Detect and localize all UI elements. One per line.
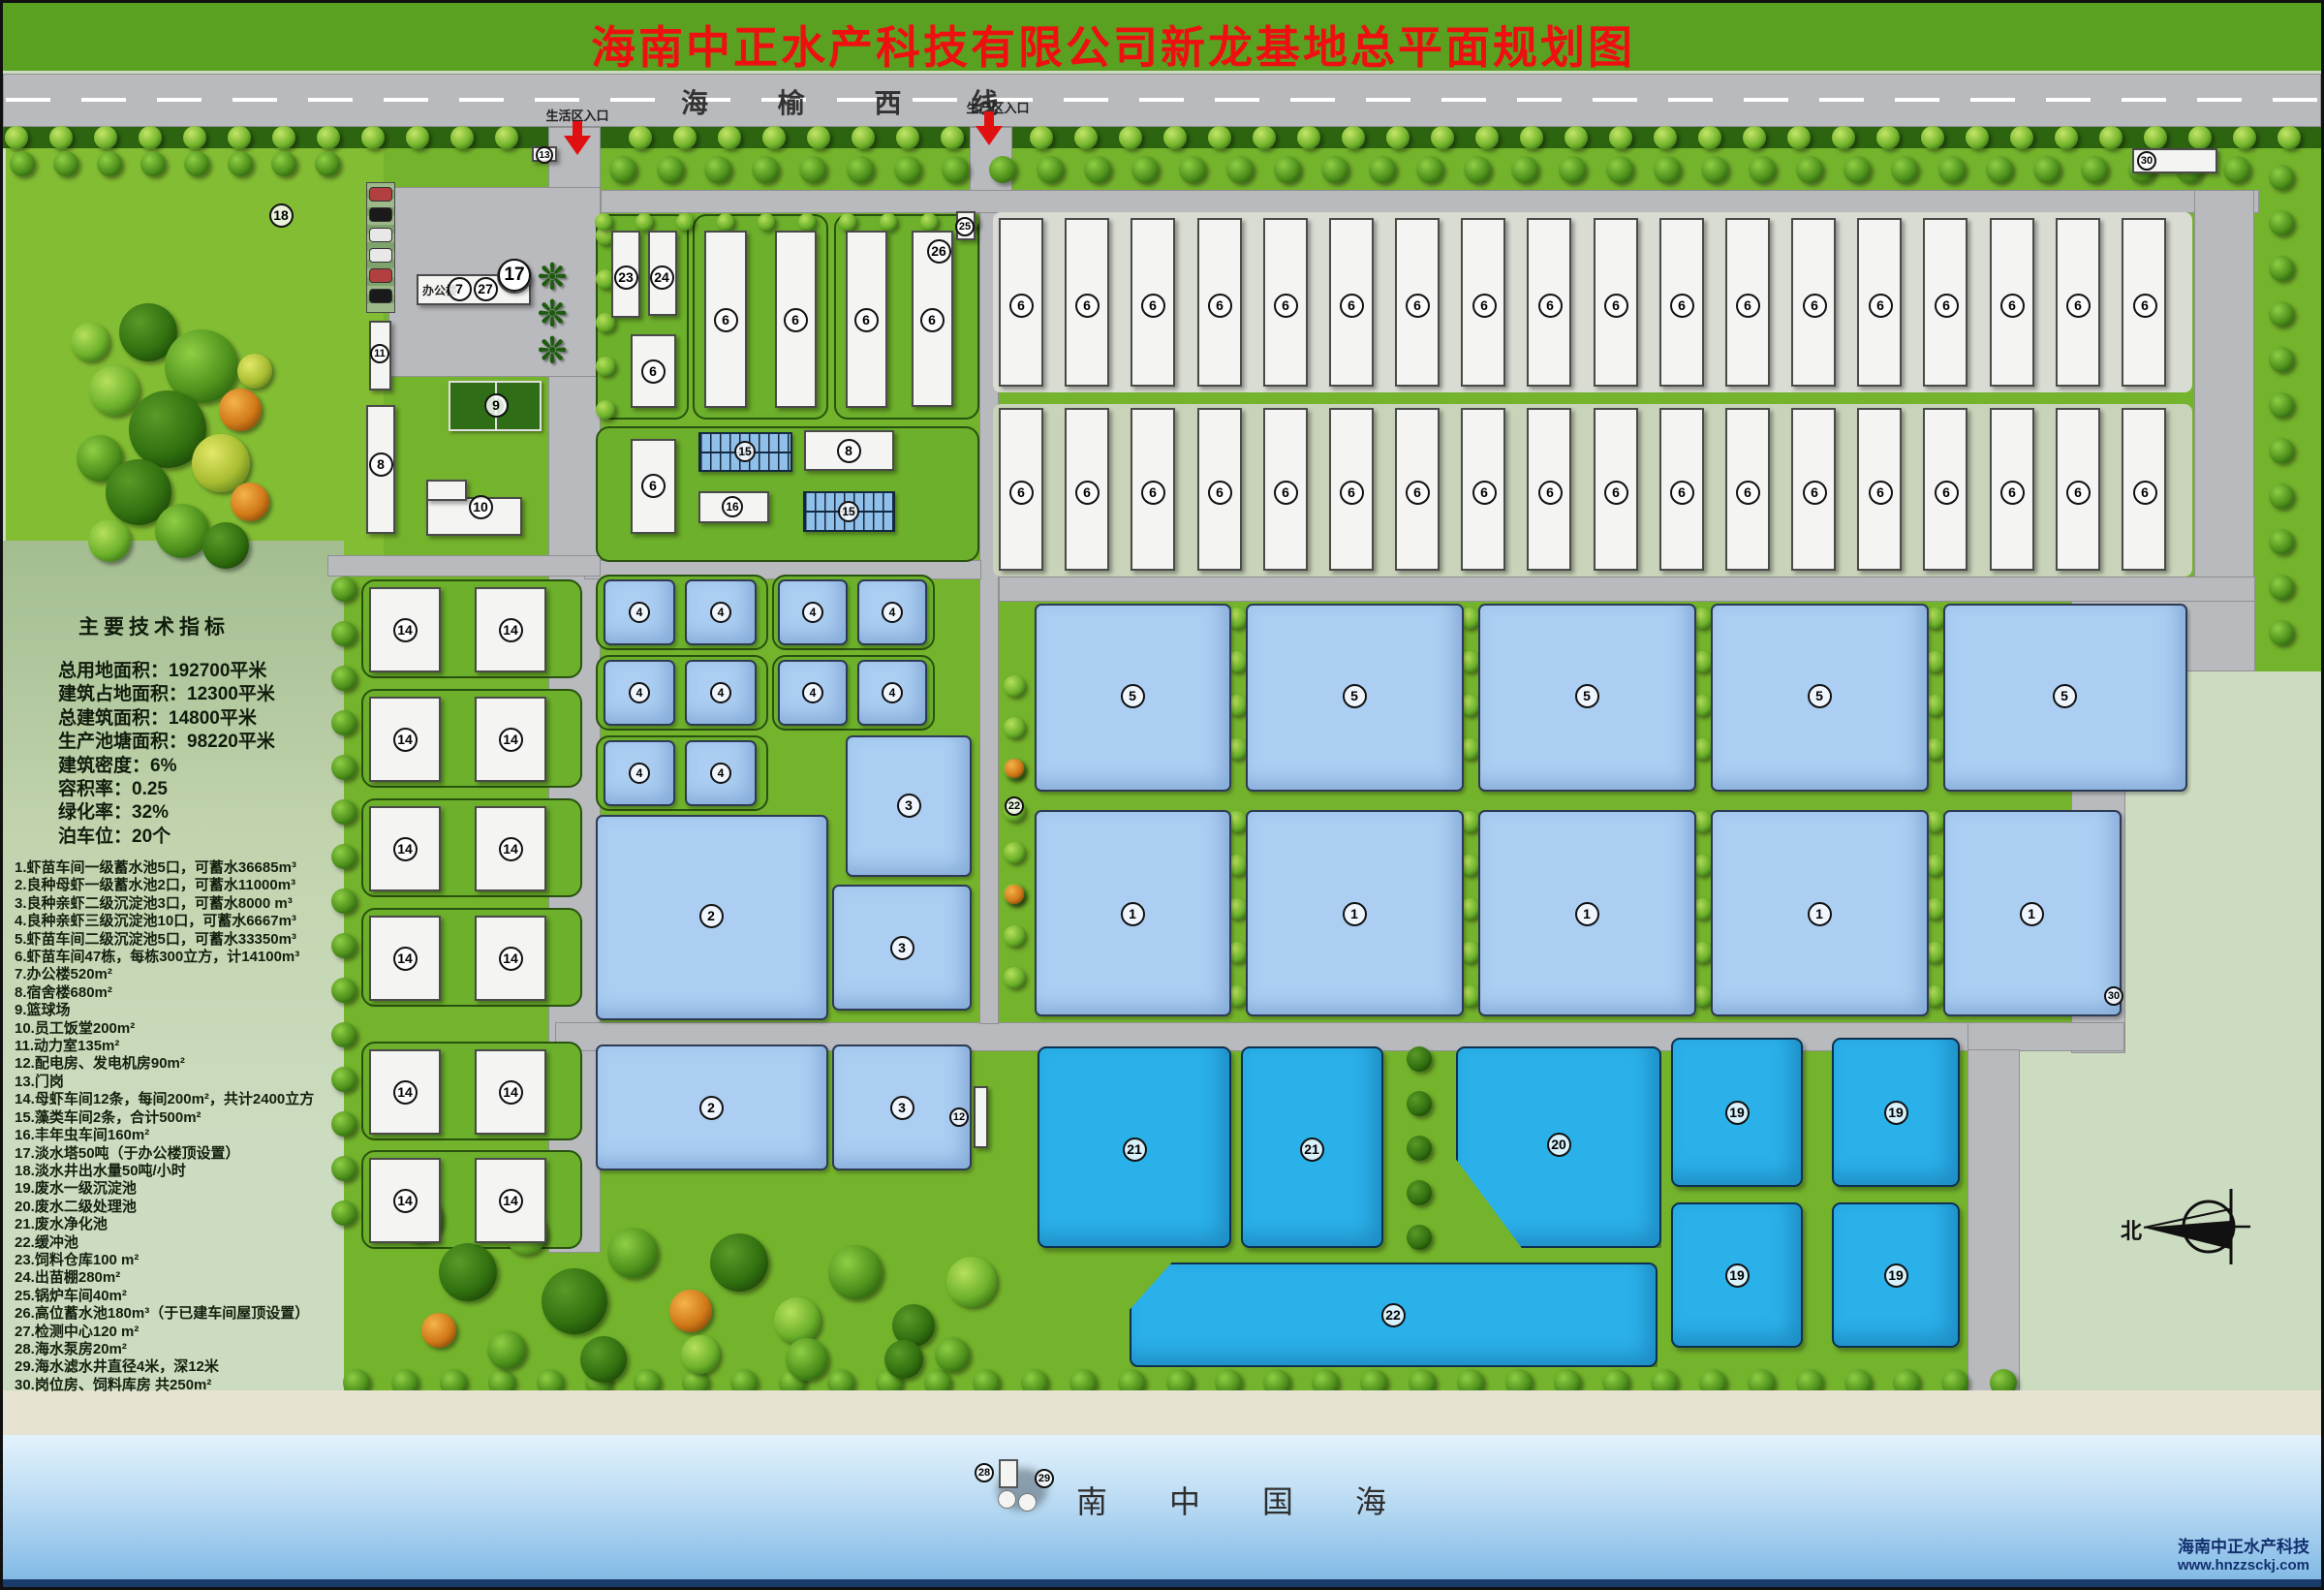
tree (1297, 126, 1320, 149)
tree (53, 151, 78, 176)
plan-marker-6: 6 (2066, 294, 2091, 318)
tree (1475, 126, 1499, 149)
tree (1431, 126, 1454, 149)
tree (2269, 301, 2294, 327)
plan-marker-6: 6 (2133, 294, 2157, 318)
plan-marker-14: 14 (499, 947, 523, 971)
plan-marker-4: 4 (802, 682, 823, 703)
plan-marker-6: 6 (1340, 481, 1364, 505)
plan-marker-16: 16 (722, 496, 743, 517)
tree (799, 156, 826, 183)
tree (2081, 156, 2108, 183)
plan-marker-4: 4 (802, 602, 823, 623)
plan-marker-2: 2 (699, 904, 724, 928)
plan-marker-22: 22 (1381, 1303, 1406, 1327)
road (601, 190, 2259, 213)
tree (580, 1336, 627, 1383)
tree (1074, 126, 1098, 149)
building (426, 480, 467, 501)
compass-icon (2086, 1166, 2279, 1292)
tree (1559, 156, 1586, 183)
seawater-pump-house (999, 1459, 1018, 1488)
tree (607, 1228, 658, 1278)
legend-item: 4.良种亲虾三级沉淀池10口，可蓄水6667m³ (15, 913, 314, 930)
plan-marker-19: 19 (1884, 1101, 1908, 1125)
sea-name-label: 南中国海 (1076, 1478, 1448, 1522)
plan-marker-27: 27 (474, 277, 498, 301)
tree (880, 213, 897, 231)
tree (2269, 483, 2294, 509)
tree (439, 1243, 497, 1301)
parked-car (369, 289, 392, 303)
plan-marker-6: 6 (1935, 294, 1959, 318)
plan-marker-6: 6 (1670, 294, 1694, 318)
tree (331, 666, 356, 691)
road (999, 577, 2255, 602)
tree (2233, 126, 2256, 149)
plan-marker-8: 8 (837, 439, 861, 463)
tree (139, 126, 162, 149)
plan-marker-14: 14 (393, 728, 418, 752)
tree (673, 126, 697, 149)
plan-marker-6: 6 (1803, 481, 1827, 505)
tree (1787, 126, 1811, 149)
tree (361, 126, 385, 149)
plan-marker-4: 4 (629, 763, 650, 784)
parked-car (369, 207, 392, 222)
plan-marker-6: 6 (1406, 294, 1430, 318)
tree (1037, 156, 1064, 183)
tree (1407, 1046, 1432, 1072)
tree (2144, 126, 2167, 149)
tree (1342, 126, 1365, 149)
legend-item: 12.配电房、发电机房90m² (15, 1055, 314, 1073)
plan-marker-6: 6 (1935, 481, 1959, 505)
indicator-line: 生产池塘面积：98220平米 (58, 731, 275, 754)
plan-marker-6: 6 (1803, 294, 1827, 318)
tree (1030, 126, 1053, 149)
tree (1796, 156, 1823, 183)
plan-marker-6: 6 (1274, 294, 1298, 318)
site-plan-canvas: 海南中正水产科技有限公司新龙基地总平面规划图 ❊❊❊ 海 榆 西 线 生活区入口… (0, 0, 2324, 1590)
watermark-company: 海南中正水产科技 (2178, 1533, 2309, 1557)
plan-marker-19: 19 (1725, 1101, 1750, 1125)
tree (704, 156, 731, 183)
tree (1606, 156, 1633, 183)
tree (1832, 126, 1855, 149)
plan-marker-18: 18 (269, 203, 294, 228)
tree (219, 389, 262, 431)
conifer-tree-icon: ❊ (538, 257, 576, 296)
tree (1163, 126, 1187, 149)
tree (331, 799, 356, 825)
indicator-line: 泊车位：20个 (58, 826, 275, 849)
tree (1084, 156, 1111, 183)
tree (1844, 156, 1871, 183)
road (1968, 1049, 2020, 1392)
tree (1698, 126, 1721, 149)
plan-marker-21: 21 (1123, 1138, 1147, 1162)
tree (71, 323, 109, 361)
tree (681, 1335, 720, 1374)
filter-well (998, 1490, 1016, 1509)
legend-item: 30.岗位房、饲料库房 共250m² (15, 1377, 314, 1394)
tree (331, 755, 356, 780)
plan-marker-6: 6 (1736, 294, 1760, 318)
plan-marker-20: 20 (1547, 1133, 1571, 1157)
legend-item: 16.丰年虫车间160m² (15, 1127, 314, 1144)
tree (1986, 156, 2013, 183)
plan-marker-4: 4 (710, 763, 731, 784)
plan-marker-14: 14 (393, 618, 418, 642)
plan-marker-3: 3 (890, 936, 914, 960)
tree (1565, 126, 1588, 149)
tree (896, 126, 919, 149)
plan-marker-15: 15 (734, 441, 756, 462)
tree (657, 156, 684, 183)
legend-item: 2.良种母虾一级蓄水池2口，可蓄水11000m³ (15, 877, 314, 894)
tree (852, 126, 875, 149)
parked-car (369, 268, 392, 283)
tree (894, 156, 921, 183)
tree (1004, 842, 1025, 863)
tree (2033, 156, 2061, 183)
tree (1407, 1091, 1432, 1116)
tree (183, 126, 206, 149)
legend-item: 21.废水净化池 (15, 1216, 314, 1233)
tree (2010, 126, 2033, 149)
tree (1966, 126, 1989, 149)
plan-marker-6: 6 (1604, 294, 1628, 318)
watermark: 海南中正水产科技 www.hnzzsckj.com (2178, 1533, 2309, 1574)
tree (798, 213, 816, 231)
plan-marker-14: 14 (499, 728, 523, 752)
plan-marker-6: 6 (1340, 294, 1364, 318)
tree (331, 1111, 356, 1137)
plan-marker-6: 6 (1075, 481, 1100, 505)
tree (271, 151, 296, 176)
entrance-living-arrow (573, 121, 582, 136)
plan-marker-30: 30 (2137, 151, 2156, 171)
tree (5, 126, 28, 149)
plan-marker-5: 5 (1121, 684, 1145, 708)
beach-strip (3, 1390, 2321, 1437)
plan-marker-6: 6 (2133, 481, 2157, 505)
tree (140, 151, 166, 176)
tree (884, 1340, 923, 1379)
plan-marker-2: 2 (699, 1096, 724, 1120)
tree (88, 519, 131, 562)
plan-marker-6: 6 (1869, 481, 1893, 505)
tree (89, 365, 139, 416)
indicators-title: 主要技术指标 (78, 611, 230, 640)
tree (231, 483, 269, 521)
legend-item: 5.虾苗车间二级沉淀池5口，可蓄水33350m³ (15, 931, 314, 949)
legend-item: 24.出苗棚280m² (15, 1269, 314, 1287)
tree (202, 522, 249, 569)
tree (272, 126, 295, 149)
legend-item: 23.饲料仓库100 m² (15, 1252, 314, 1269)
plan-marker-14: 14 (393, 1080, 418, 1105)
tree (1407, 1180, 1432, 1205)
plan-marker-4: 4 (629, 602, 650, 623)
plan-marker-3: 3 (890, 1096, 914, 1120)
tree (629, 126, 652, 149)
tree (228, 151, 253, 176)
tree (717, 213, 734, 231)
plan-marker-4: 4 (710, 682, 731, 703)
plan-marker-6: 6 (1009, 294, 1034, 318)
tree (487, 1330, 526, 1369)
legend-item: 11.动力室135m² (15, 1038, 314, 1055)
building (974, 1086, 988, 1148)
plan-marker-6: 6 (2066, 481, 2091, 505)
tree (1005, 885, 1024, 904)
plan-marker-28: 28 (975, 1463, 994, 1482)
tree (828, 1245, 883, 1299)
tree (1464, 156, 1491, 183)
tree (1321, 156, 1348, 183)
plan-marker-1: 1 (1575, 902, 1599, 926)
tree (228, 126, 251, 149)
tree (774, 1297, 821, 1344)
tree (331, 1022, 356, 1047)
tree (155, 504, 209, 558)
entrance-production-arrow-head (976, 126, 1003, 145)
tree (331, 1200, 356, 1226)
tree (1407, 1225, 1432, 1250)
plan-marker-9: 9 (484, 393, 509, 418)
plan-marker-1: 1 (2020, 902, 2044, 926)
tree (935, 1337, 970, 1372)
road-centerline (6, 98, 2324, 102)
filter-well (1018, 1493, 1037, 1512)
plan-marker-1: 1 (1121, 902, 1145, 926)
plan-marker-21: 21 (1300, 1138, 1324, 1162)
plan-marker-6: 6 (641, 359, 666, 384)
tree (331, 1156, 356, 1181)
road (1968, 1022, 2124, 1051)
tree (2278, 126, 2301, 149)
plan-marker-4: 4 (882, 682, 903, 703)
plan-marker-12: 12 (949, 1107, 969, 1127)
plan-marker-6: 6 (1869, 294, 1893, 318)
tree (1743, 126, 1766, 149)
plan-marker-1: 1 (1343, 902, 1367, 926)
legend-item: 28.海水泵房20m² (15, 1341, 314, 1358)
tree (635, 213, 653, 231)
tree (1004, 925, 1025, 947)
indicator-line: 总用地面积：192700平米 (58, 660, 275, 683)
tree (1876, 126, 1900, 149)
page-title: 海南中正水产科技有限公司新龙基地总平面规划图 (3, 13, 2223, 77)
plan-marker-6: 6 (2000, 294, 2025, 318)
plan-marker-25: 25 (955, 217, 975, 236)
indicator-line: 建筑占地面积：12300平米 (58, 683, 275, 706)
tree (609, 156, 636, 183)
legend-item: 27.检测中心120 m² (15, 1324, 314, 1341)
plan-marker-19: 19 (1725, 1263, 1750, 1288)
tree (331, 1067, 356, 1092)
tree (317, 126, 340, 149)
plan-marker-26: 26 (927, 239, 951, 264)
tree (1654, 156, 1681, 183)
plan-marker-13: 13 (536, 146, 553, 164)
plan-marker-22: 22 (1005, 796, 1024, 816)
compass-north-label: 北 (2121, 1214, 2142, 1245)
plan-marker-6: 6 (1009, 481, 1034, 505)
tree (331, 844, 356, 869)
plan-marker-17: 17 (498, 259, 531, 292)
plan-marker-6: 6 (784, 308, 808, 332)
conifer-tree-icon: ❊ (538, 330, 576, 369)
tree (758, 213, 775, 231)
plan-marker-14: 14 (499, 618, 523, 642)
plan-marker-5: 5 (1808, 684, 1832, 708)
tree (2055, 126, 2078, 149)
tree (946, 1257, 997, 1307)
tree (1386, 126, 1410, 149)
plan-marker-6: 6 (1670, 481, 1694, 505)
plan-marker-6: 6 (2000, 481, 2025, 505)
legend-item: 14.母虾车间12条，每间200m²，共计2400立方 (15, 1091, 314, 1108)
plan-marker-14: 14 (499, 837, 523, 861)
sea-bottom-bar (3, 1579, 2321, 1590)
tree (2269, 210, 2294, 235)
parked-car (369, 228, 392, 242)
tree (331, 978, 356, 1003)
legend-item: 13.门岗 (15, 1074, 314, 1091)
tree (847, 156, 874, 183)
tree (421, 1313, 456, 1348)
tree (1749, 156, 1776, 183)
plan-marker-6: 6 (1472, 481, 1497, 505)
tree (718, 126, 741, 149)
plan-marker-6: 6 (1141, 294, 1165, 318)
tree (676, 213, 694, 231)
plan-marker-29: 29 (1035, 1469, 1054, 1488)
indicator-line: 绿化率：32% (58, 801, 275, 825)
tree (1938, 156, 1966, 183)
plan-marker-6: 6 (1538, 481, 1563, 505)
tree (1654, 126, 1677, 149)
tree (495, 126, 518, 149)
tree (97, 151, 122, 176)
tree (1208, 126, 1231, 149)
tree (1004, 967, 1025, 988)
tree (920, 213, 938, 231)
plan-marker-6: 6 (1538, 294, 1563, 318)
tree (331, 889, 356, 914)
legend-item: 9.篮球场 (15, 1002, 314, 1019)
tree (331, 933, 356, 958)
conifer-tree-icon: ❊ (538, 294, 576, 332)
tree (1609, 126, 1632, 149)
indicator-line: 建筑密度：6% (58, 755, 275, 778)
indicator-line: 容积率：0.25 (58, 778, 275, 801)
indicator-line: 总建筑面积：14800平米 (58, 707, 275, 731)
legend-item: 19.废水一级沉淀池 (15, 1180, 314, 1198)
legend-item: 20.废水二级处理池 (15, 1199, 314, 1216)
tree (10, 151, 35, 176)
plan-marker-6: 6 (1736, 481, 1760, 505)
plan-marker-14: 14 (499, 1080, 523, 1105)
tree (1179, 156, 1206, 183)
tree (1369, 156, 1396, 183)
road (327, 555, 601, 577)
plan-marker-30: 30 (2104, 986, 2123, 1006)
legend-list: 1.虾苗车间一级蓄水池5口，可蓄水36685m³2.良种母虾一级蓄水池2口，可蓄… (15, 859, 314, 1394)
plan-marker-3: 3 (897, 794, 921, 818)
tree (2269, 620, 2294, 645)
tree (1407, 1136, 1432, 1161)
plan-marker-10: 10 (469, 495, 493, 519)
tree (710, 1233, 768, 1292)
plan-marker-5: 5 (1575, 684, 1599, 708)
tree (1004, 717, 1025, 738)
entrance-production-label: 生产区入口 (945, 98, 1051, 116)
plan-marker-23: 23 (614, 265, 638, 290)
plan-marker-6: 6 (1208, 294, 1232, 318)
tree (595, 213, 612, 231)
plan-marker-14: 14 (393, 1189, 418, 1213)
entrance-living-arrow-head (564, 136, 591, 155)
tree (542, 1268, 607, 1334)
tree (596, 357, 615, 376)
plan-marker-6: 6 (1274, 481, 1298, 505)
plan-marker-6: 6 (1075, 294, 1100, 318)
tree (839, 213, 856, 231)
plan-marker-5: 5 (1343, 684, 1367, 708)
plan-marker-8: 8 (369, 452, 393, 477)
plan-marker-6: 6 (1141, 481, 1165, 505)
plan-marker-1: 1 (1808, 902, 1832, 926)
tree (1226, 156, 1254, 183)
plan-marker-4: 4 (710, 602, 731, 623)
legend-item: 7.办公楼520m² (15, 966, 314, 983)
tree (669, 1290, 712, 1332)
tree (315, 151, 340, 176)
tree (237, 354, 272, 389)
plan-marker-5: 5 (2053, 684, 2077, 708)
parked-car (369, 187, 392, 202)
entrance-production-arrow (984, 111, 994, 126)
tree (184, 151, 209, 176)
plan-marker-11: 11 (370, 344, 389, 363)
tree (2099, 126, 2123, 149)
tree (2269, 529, 2294, 554)
tree (1891, 156, 1918, 183)
tree (49, 126, 73, 149)
tree (2269, 256, 2294, 281)
tree (1416, 156, 1443, 183)
tree (331, 621, 356, 646)
plan-marker-7: 7 (448, 277, 472, 301)
tree (2269, 347, 2294, 372)
plan-marker-4: 4 (629, 682, 650, 703)
tree (1921, 126, 1944, 149)
plan-marker-14: 14 (499, 1189, 523, 1213)
tree (752, 156, 779, 183)
legend-item: 6.虾苗车间47栋，每栋300立方，计14100m³ (15, 949, 314, 966)
tree (762, 126, 786, 149)
plan-marker-14: 14 (393, 837, 418, 861)
tree (786, 1338, 828, 1381)
plan-marker-15: 15 (838, 501, 859, 522)
tree (331, 577, 356, 602)
plan-marker-6: 6 (854, 308, 879, 332)
tree (331, 710, 356, 735)
